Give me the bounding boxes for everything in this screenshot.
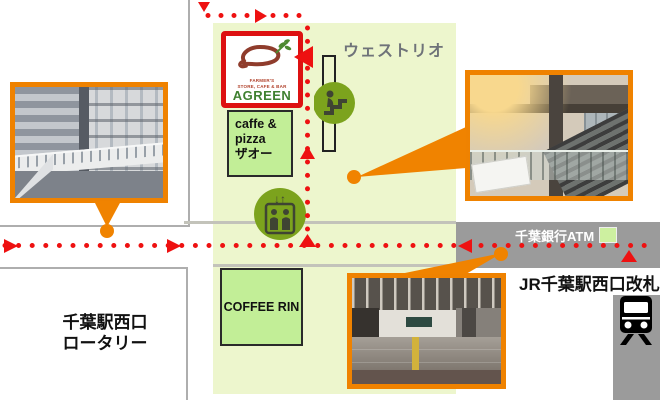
concourse-ceiling <box>352 278 501 310</box>
route-arrow-right-top-icon <box>255 9 267 23</box>
escalator-icon <box>314 55 356 155</box>
agreen-turtle-icon <box>232 39 292 73</box>
zao-line3: ザオー <box>235 147 291 162</box>
route-arrow-right-b2-icon <box>167 239 181 253</box>
chiba-bank-atm-label: 千葉銀行ATM <box>515 226 594 245</box>
concourse-sign <box>406 317 433 327</box>
street-edge-lower <box>213 264 456 267</box>
street-edge-upper <box>184 221 456 224</box>
rotary-label-line2: ロータリー <box>25 333 185 354</box>
agreen-name: AGREEN <box>226 89 298 103</box>
atm-location-marker <box>599 227 617 243</box>
coffee-rin-box: COFFEE RIN <box>220 268 303 346</box>
westrio-label: ウェストリオ <box>343 37 445 61</box>
zao-line2: pizza <box>235 132 291 147</box>
zao-line1: caffe & <box>235 117 291 132</box>
elevator-icon: ↓↑ <box>252 186 308 242</box>
agreen-logo-box: FARMER'S STORE, CAFE & BAR AGREEN <box>221 31 303 108</box>
train-icon <box>617 294 655 346</box>
access-map: ウェストリオ 千葉駅西口 ロータリー 千葉銀行ATM JR千葉駅西口改札 caf… <box>0 0 660 400</box>
concourse-foreground <box>352 370 501 384</box>
station-atrium-photo <box>465 70 633 201</box>
rotary-label: 千葉駅西口 ロータリー <box>25 312 185 354</box>
west-gate-concourse-photo <box>347 273 506 389</box>
route-arrow-right-b1-icon <box>4 239 18 253</box>
jr-west-gate-label: JR千葉駅西口改札 <box>519 270 660 295</box>
route-arrow-down-icon <box>198 2 210 12</box>
coffee-rin-label: COFFEE RIN <box>224 300 300 314</box>
west-deck-photo <box>10 82 168 203</box>
rotary-label-line1: 千葉駅西口 <box>25 312 185 333</box>
caffe-pizza-zao-box: caffe & pizza ザオー <box>227 110 293 177</box>
